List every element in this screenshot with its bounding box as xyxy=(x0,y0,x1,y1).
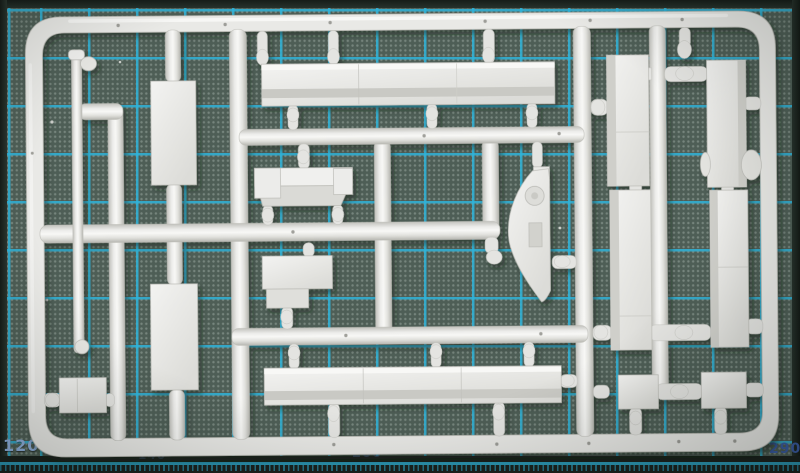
runner-vertical-1-top xyxy=(165,30,180,82)
runner-vertical-fin-drop xyxy=(482,140,499,234)
part-stepped-block xyxy=(262,256,332,309)
part-long-plank-bottom xyxy=(264,366,561,406)
part-thin-rod xyxy=(68,50,99,354)
runner-vertical-1-bottom xyxy=(169,390,184,440)
part-side-plank-left-upper xyxy=(606,55,649,186)
sprue xyxy=(25,11,779,458)
part-side-plank-left-lower xyxy=(610,190,652,350)
part-bench-plank xyxy=(254,167,352,206)
part-flat-panel-lower xyxy=(150,284,198,390)
part-flat-panel-upper xyxy=(151,81,197,185)
runner-vertical-left-short xyxy=(108,105,126,440)
fin-slot-detail xyxy=(529,223,542,247)
part-long-plank-top xyxy=(261,62,554,107)
part-side-plank-right-lower xyxy=(710,190,749,347)
part-small-block-right-a xyxy=(618,375,658,409)
runner-horizontal-a xyxy=(79,103,123,119)
part-small-block-right-b xyxy=(701,372,746,408)
photo-of-sprue-on-cutting-mat: 120 140 200 290 xyxy=(0,0,800,473)
part-dome-fin xyxy=(508,167,551,302)
runner-vertical-center-right xyxy=(573,26,594,436)
sprue-svg xyxy=(0,0,800,473)
part-small-block-left xyxy=(59,378,106,413)
part-side-plank-right-upper xyxy=(699,60,761,188)
